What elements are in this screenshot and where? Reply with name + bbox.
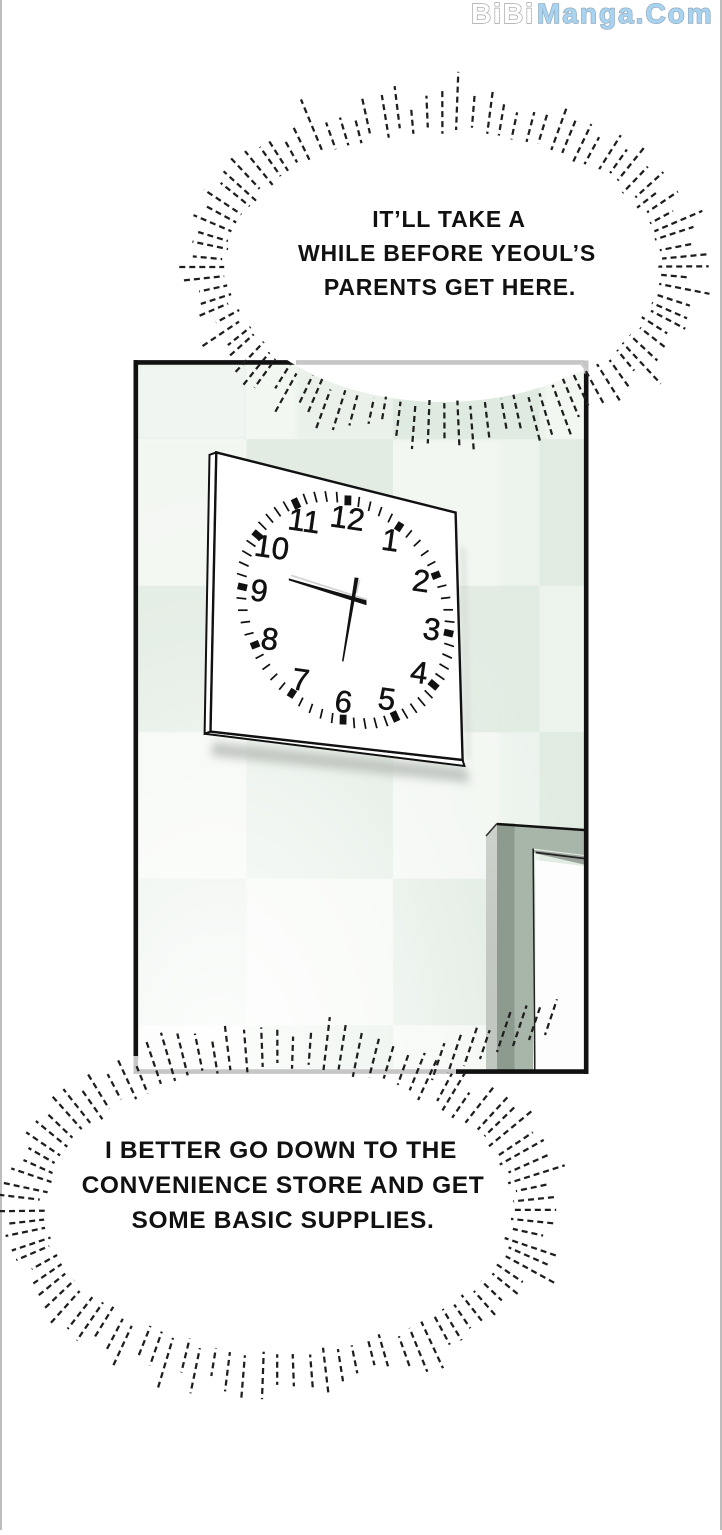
- svg-text:SOME BASIC SUPPLIES.: SOME BASIC SUPPLIES.: [132, 1207, 435, 1234]
- svg-text:WHILE BEFORE YEOUL’S: WHILE BEFORE YEOUL’S: [298, 240, 596, 266]
- svg-text:12: 12: [328, 498, 367, 537]
- svg-text:PARENTS GET HERE.: PARENTS GET HERE.: [324, 274, 576, 300]
- svg-text:IT’LL TAKE A: IT’LL TAKE A: [372, 206, 526, 232]
- svg-text:Manga.Com: Manga.Com: [537, 0, 714, 29]
- svg-text:11: 11: [286, 501, 323, 540]
- svg-text:CONVENIENCE STORE AND GET: CONVENIENCE STORE AND GET: [82, 1172, 485, 1199]
- svg-text:BiBi: BiBi: [471, 0, 535, 29]
- svg-text:I BETTER GO DOWN TO THE: I BETTER GO DOWN TO THE: [105, 1137, 457, 1164]
